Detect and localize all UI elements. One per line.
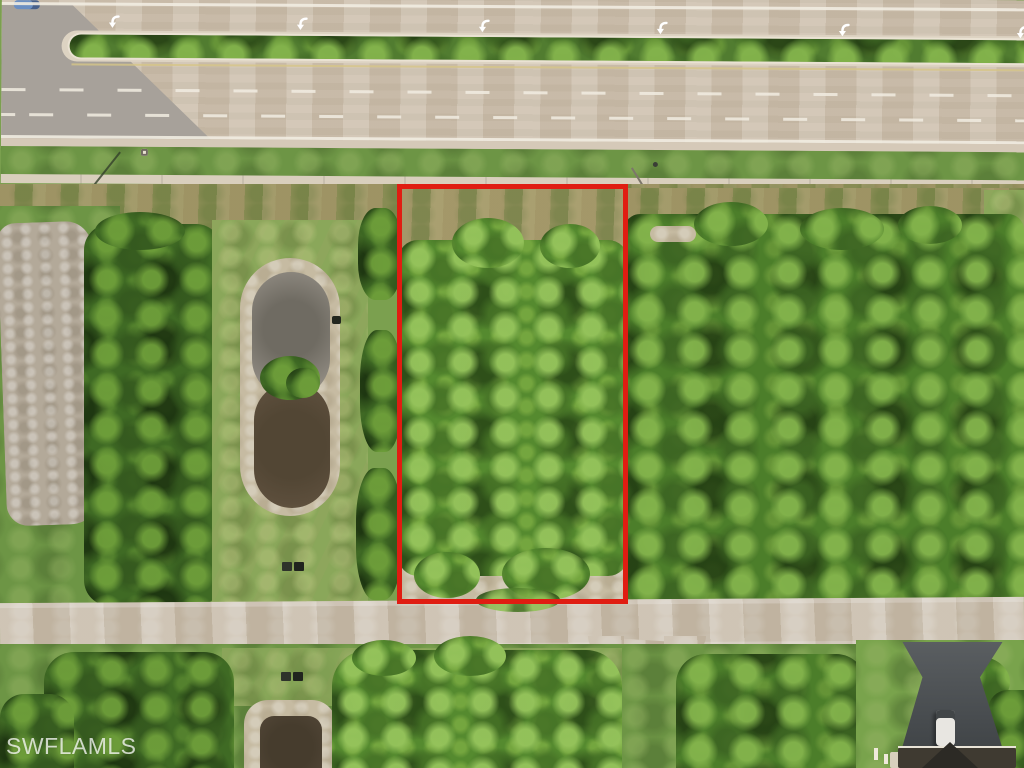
tree-canopy-blob xyxy=(95,212,185,250)
parcel-boundary-outline xyxy=(397,184,628,604)
u-turn-arrow-icon xyxy=(476,18,493,35)
tree-canopy-blob xyxy=(358,208,402,300)
tree-canopy-right xyxy=(624,214,1024,608)
tree-canopy-blob xyxy=(800,208,884,250)
house-fascia xyxy=(898,746,1016,748)
sand-patch xyxy=(650,226,696,242)
watermark: SWFLAMLS xyxy=(6,733,137,760)
ground-object xyxy=(332,316,341,324)
fence-post xyxy=(874,748,878,760)
tree-canopy-left xyxy=(84,224,222,606)
u-turn-arrow-icon xyxy=(836,22,853,39)
u-turn-arrow-icon xyxy=(654,20,671,37)
tree-canopy-blob xyxy=(694,202,768,246)
ground-object xyxy=(281,672,291,681)
tree-canopy-blob xyxy=(434,636,506,676)
pond-water xyxy=(254,382,330,508)
tree-canopy-blob xyxy=(360,330,402,452)
pond-bush xyxy=(286,368,320,398)
aerial-lot-photo: SWFLAMLS xyxy=(0,0,1024,768)
street-light-lamp xyxy=(653,162,658,167)
street-light-base xyxy=(141,149,148,156)
tree-canopy-blob xyxy=(898,206,962,244)
tree-canopy-blob xyxy=(356,468,402,600)
bottom-pond-water xyxy=(260,716,322,768)
tree-canopy-bottom-right xyxy=(676,654,866,768)
parked-truck xyxy=(936,710,955,746)
ground-object xyxy=(282,562,292,571)
fence-post xyxy=(884,754,888,764)
ground-object xyxy=(293,672,303,681)
tree-canopy-blob xyxy=(352,640,416,676)
u-turn-arrow-icon xyxy=(1014,24,1024,41)
u-turn-arrow-icon xyxy=(106,14,123,31)
u-turn-arrow-icon xyxy=(294,16,311,33)
ground-object xyxy=(294,562,304,571)
